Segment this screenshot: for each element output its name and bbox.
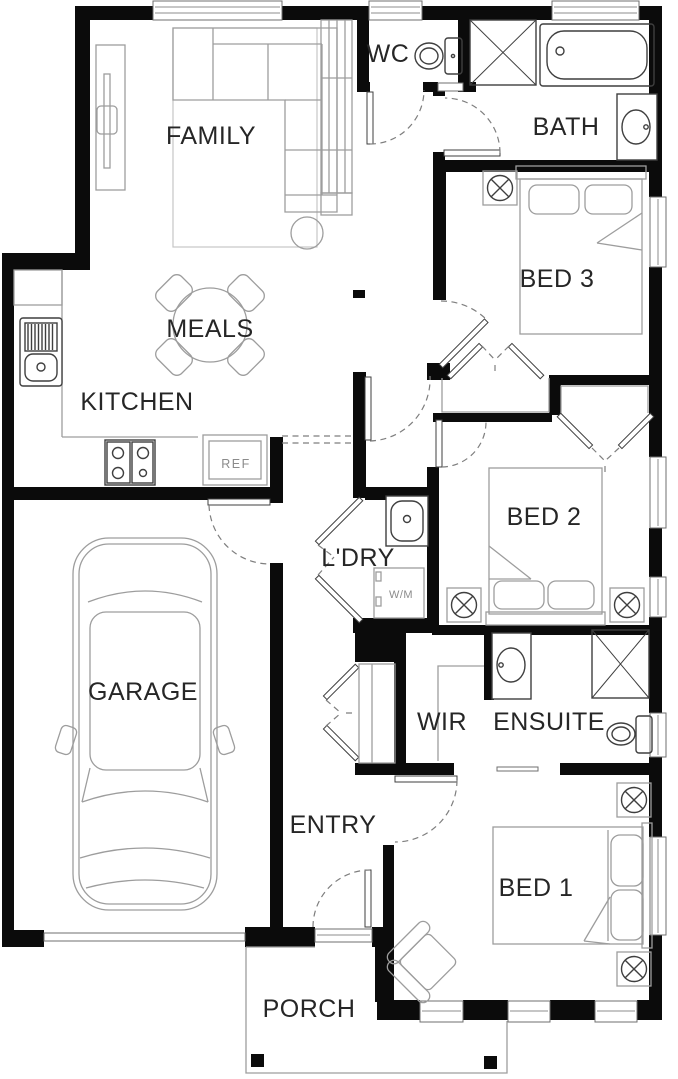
hall-door [365, 376, 430, 441]
porch-post [251, 1054, 264, 1067]
bed-icon [486, 468, 605, 625]
toilet-icon [415, 38, 462, 74]
car-icon [54, 538, 236, 910]
robe-shelf [561, 386, 648, 413]
room-meals: MEALS [153, 272, 267, 378]
floor-plan: FAMILY WC BATH [0, 0, 678, 1079]
downlight-icon [617, 952, 651, 986]
room-label-bed3: BED 3 [520, 265, 595, 293]
room-entry: ENTRY [290, 811, 377, 839]
downlight-icon [617, 783, 651, 817]
room-label-laundry: L'DRY [321, 544, 395, 572]
room-wc: WC [367, 38, 462, 74]
washing-machine-label: W/M [389, 589, 413, 601]
room-garage: GARAGE [54, 538, 236, 910]
wall-niche [438, 83, 463, 91]
room-label-wir: WIR [417, 708, 467, 736]
bed1-door [395, 776, 457, 842]
window [153, 1, 282, 20]
window [369, 1, 422, 20]
garage-internal-door [208, 499, 270, 564]
fridge-icon: REF [203, 435, 267, 485]
window [650, 457, 666, 528]
bathtub-icon [540, 24, 654, 86]
downlight-icon [447, 588, 481, 622]
shower-icon [470, 20, 536, 85]
window [650, 197, 666, 267]
open-bulkhead-dashes [282, 436, 355, 443]
basin-icon [492, 633, 531, 699]
wc-door [367, 90, 424, 144]
room-label-ensuite: ENSUITE [493, 708, 605, 736]
bed-icon [516, 166, 646, 334]
bath-door [444, 98, 500, 156]
porch-post [484, 1056, 497, 1069]
cooktop-icon [105, 440, 155, 485]
room-label-entry: ENTRY [290, 811, 377, 839]
room-label-kitchen: KITCHEN [80, 388, 193, 416]
bench-corner [14, 270, 62, 305]
opening-line [497, 767, 538, 771]
room-kitchen: REF KITCHEN [14, 270, 267, 485]
basin-icon [617, 94, 657, 160]
room-family: FAMILY [96, 20, 352, 249]
room-wir: WIR [359, 664, 484, 763]
window [508, 1001, 550, 1022]
sink-icon [20, 318, 62, 386]
room-bed1: BED 1 [380, 783, 652, 1005]
window [650, 577, 666, 617]
bed2-door [436, 420, 486, 467]
window [420, 1001, 463, 1022]
front-door [313, 870, 371, 927]
room-label-meals: MEALS [166, 315, 253, 343]
room-label-wc: WC [367, 40, 410, 68]
bed3-door [439, 301, 488, 368]
laundry-trough-icon [386, 496, 428, 546]
room-label-porch: PORCH [263, 995, 356, 1023]
window [552, 1, 639, 20]
bed2-robe-doors [557, 413, 654, 472]
room-label-bed2: BED 2 [507, 503, 582, 531]
shower-icon [592, 630, 649, 698]
entry-closet-doors [323, 664, 358, 761]
cupboard-shelves [321, 20, 352, 215]
room-label-bed1: BED 1 [499, 874, 574, 902]
entry-closet [359, 664, 395, 763]
room-label-bath: BATH [533, 113, 600, 141]
front-door-threshold [315, 929, 372, 942]
garage-panel-door [44, 933, 245, 941]
tv-unit-icon [96, 45, 125, 190]
room-label-family: FAMILY [166, 122, 256, 150]
toilet-icon [607, 716, 652, 753]
room-bed3: BED 3 [483, 166, 646, 334]
room-ensuite: ENSUITE [492, 630, 652, 753]
window [595, 1001, 637, 1022]
fridge-label: REF [221, 457, 251, 471]
washing-machine-icon: W/M [374, 568, 424, 618]
downlight-icon [483, 171, 517, 205]
downlight-icon [610, 588, 644, 622]
room-label-garage: GARAGE [88, 678, 198, 706]
linen-shelf [442, 378, 549, 412]
